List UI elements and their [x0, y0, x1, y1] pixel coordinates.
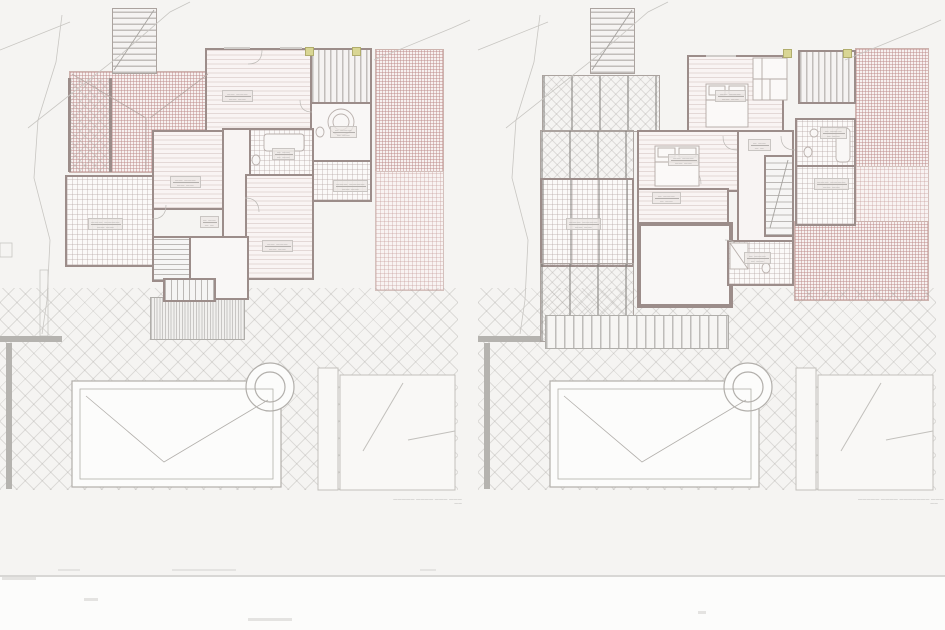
room-label: ——— —————— —— — [566, 218, 601, 230]
room-label: —— ————— —— — [715, 90, 746, 102]
room-label: — ——— —— — [272, 148, 295, 160]
internal-stairs — [764, 155, 794, 237]
stair-room — [310, 48, 372, 106]
room-label: ——— —————— —— — [814, 178, 849, 190]
faint-mark — [84, 598, 98, 601]
room-label: —— ————— —— — [668, 154, 699, 166]
room-label: —— ————— —— — [262, 240, 293, 252]
drawing-sheet: { "sheet": { "title": "two-storey house … — [0, 0, 945, 630]
room-label: — ———— —— — [744, 252, 771, 264]
terrace-east-room — [795, 165, 856, 226]
column-marker — [305, 47, 314, 56]
external-stair-north — [112, 8, 157, 74]
pergola-slat-band — [545, 315, 729, 349]
column-marker — [352, 47, 361, 56]
plan-ground-floor: —— ————— —— — ———— —— — ——— —— —— ————— … — [0, 0, 472, 575]
double-height-void — [637, 222, 733, 308]
column-marker — [783, 49, 792, 58]
sheet-divider-line — [0, 575, 945, 577]
room-label: — ———— —— — [330, 126, 357, 138]
internal-stairs-upper — [152, 236, 191, 282]
pergola-roof-top — [542, 75, 660, 132]
room-label: — ———— —— — [820, 127, 847, 139]
room-label: ——— —————— —— — [333, 180, 368, 192]
roof-hatch-east-upper — [856, 49, 928, 167]
faint-mark — [698, 611, 706, 614]
room-label: —— ————— —— — [222, 90, 253, 102]
room-west — [152, 130, 226, 210]
room-small — [637, 188, 729, 226]
room-label: — ———— —— — [652, 192, 681, 204]
plan-caption: ————— ———— ——————— ————— — [858, 496, 938, 506]
room-label: —— ————— —— — [170, 176, 201, 188]
faint-mark — [248, 618, 292, 621]
gravel-strip — [150, 297, 245, 340]
room-label: ——— —————— —— — [88, 218, 123, 230]
room-south — [245, 174, 314, 280]
column-marker — [843, 49, 852, 58]
faint-mark — [58, 569, 80, 571]
room-label: — ——— — — [748, 139, 771, 151]
room-label: — ——— — — [200, 216, 219, 228]
internal-stairs-lower — [163, 278, 216, 302]
terrace-northwest — [68, 78, 112, 172]
terrace-hatch-east — [856, 167, 928, 222]
plan-caption: ————— ———— ——— ————— — [390, 496, 462, 506]
pergola-roof-main — [540, 130, 634, 180]
faint-mark — [172, 569, 236, 571]
bathroom-east — [795, 118, 856, 169]
faint-mark — [420, 569, 436, 571]
roof-hatch-east — [376, 50, 443, 172]
faint-mark — [2, 577, 36, 580]
stair-room — [798, 50, 856, 104]
terrace-hatch-east — [376, 172, 443, 290]
external-stair-north — [590, 8, 635, 74]
